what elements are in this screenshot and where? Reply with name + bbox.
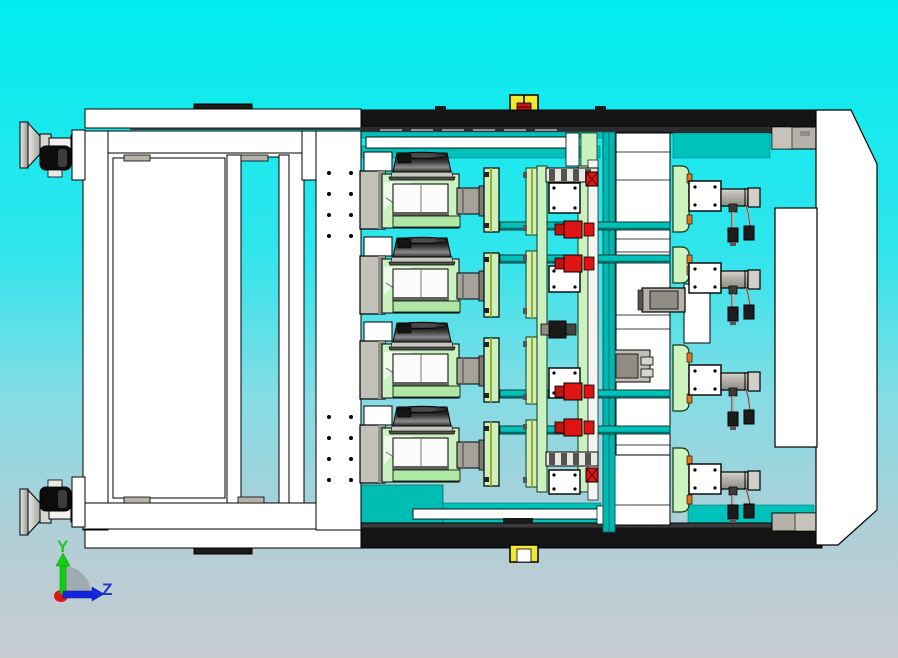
svg-text:Z: Z: [102, 580, 112, 599]
svg-text:Y: Y: [57, 537, 69, 556]
